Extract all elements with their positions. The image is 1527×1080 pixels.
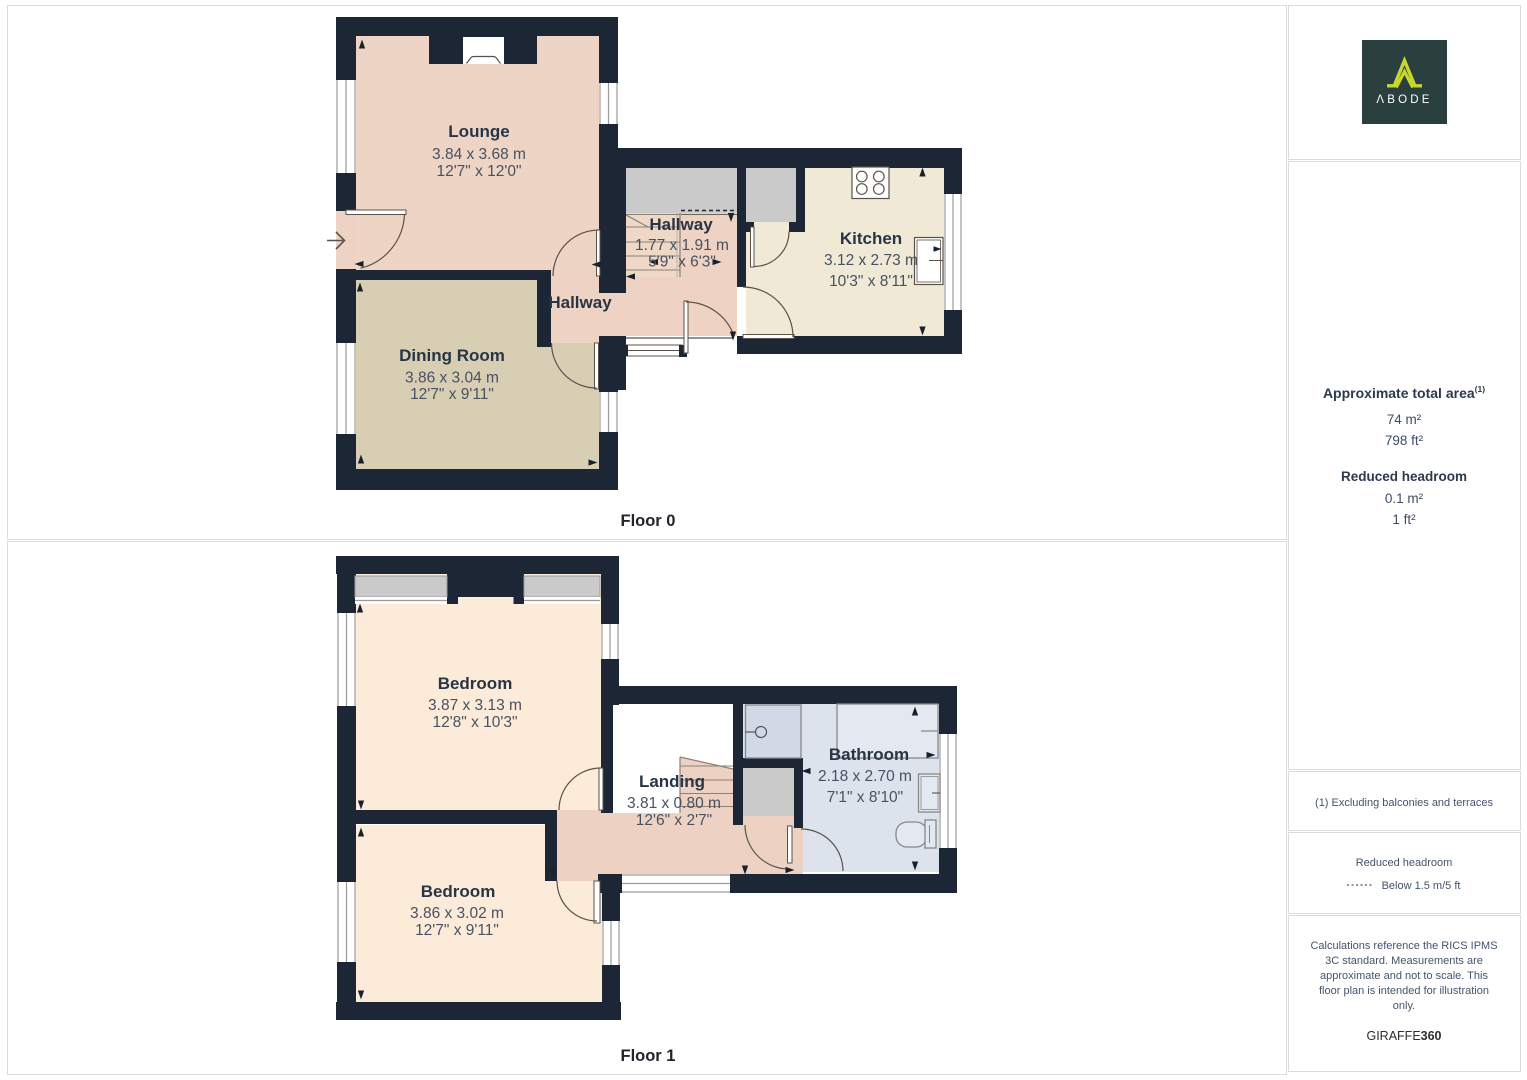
- svg-text:5'9" x 6'3": 5'9" x 6'3": [648, 254, 716, 271]
- svg-text:Dining Room: Dining Room: [399, 346, 505, 365]
- svg-text:Below 1.5 m/5 ft: Below 1.5 m/5 ft: [1382, 880, 1461, 892]
- svg-text:Landing: Landing: [639, 772, 705, 791]
- svg-text:Calculations reference the RIC: Calculations reference the RICS IPMS: [1310, 940, 1497, 952]
- svg-text:floor plan is intended for ill: floor plan is intended for illustration: [1319, 985, 1489, 997]
- svg-text:Floor 1: Floor 1: [620, 1047, 675, 1065]
- svg-text:Reduced headroom: Reduced headroom: [1356, 857, 1453, 869]
- svg-text:3.81 x 0.80 m: 3.81 x 0.80 m: [627, 795, 721, 812]
- svg-text:Hallway: Hallway: [649, 215, 713, 234]
- svg-text:only.: only.: [1393, 1000, 1415, 1012]
- svg-text:Floor 0: Floor 0: [620, 512, 675, 530]
- svg-text:12'7" x 12'0": 12'7" x 12'0": [436, 163, 521, 180]
- svg-text:10'3" x 8'11": 10'3" x 8'11": [829, 273, 913, 290]
- svg-text:Approximate total area(1): Approximate total area(1): [1323, 384, 1485, 401]
- svg-text:1 ft²: 1 ft²: [1392, 512, 1416, 527]
- svg-text:12'6" x 2'7": 12'6" x 2'7": [636, 812, 712, 829]
- svg-text:3.86 x 3.04 m: 3.86 x 3.04 m: [405, 370, 499, 387]
- svg-text:0.1 m²: 0.1 m²: [1385, 491, 1424, 506]
- svg-text:Reduced headroom: Reduced headroom: [1341, 469, 1467, 484]
- svg-text:ΛBODE: ΛBODE: [1376, 94, 1432, 106]
- svg-text:2.18 x 2.70 m: 2.18 x 2.70 m: [818, 768, 912, 785]
- svg-text:12'7" x 9'11": 12'7" x 9'11": [415, 922, 499, 939]
- svg-text:74 m²: 74 m²: [1387, 412, 1422, 427]
- svg-text:3C standard. Measurements are: 3C standard. Measurements are: [1325, 955, 1483, 967]
- svg-text:Lounge: Lounge: [448, 122, 509, 141]
- svg-text:Bathroom: Bathroom: [829, 745, 909, 764]
- svg-text:Kitchen: Kitchen: [840, 229, 902, 248]
- svg-text:GIRAFFE360: GIRAFFE360: [1366, 1029, 1441, 1043]
- svg-text:12'8" x 10'3": 12'8" x 10'3": [432, 714, 517, 731]
- svg-text:798 ft²: 798 ft²: [1385, 433, 1424, 448]
- svg-text:approximate and not to scale.: approximate and not to scale. This: [1320, 970, 1488, 982]
- svg-text:3.87 x 3.13 m: 3.87 x 3.13 m: [428, 697, 522, 714]
- svg-text:3.84 x 3.68 m: 3.84 x 3.68 m: [432, 146, 526, 163]
- svg-text:3.12 x 2.73 m: 3.12 x 2.73 m: [824, 252, 918, 269]
- svg-text:12'7" x 9'11": 12'7" x 9'11": [410, 386, 494, 403]
- svg-text:(1) Excluding balconies and te: (1) Excluding balconies and terraces: [1315, 797, 1493, 809]
- svg-text:1.77 x 1.91 m: 1.77 x 1.91 m: [635, 237, 729, 254]
- svg-text:7'1" x 8'10": 7'1" x 8'10": [827, 789, 903, 806]
- svg-text:Hallway: Hallway: [548, 293, 612, 312]
- svg-text:Bedroom: Bedroom: [438, 674, 513, 693]
- svg-text:3.86 x 3.02 m: 3.86 x 3.02 m: [410, 905, 504, 922]
- svg-text:Bedroom: Bedroom: [421, 882, 496, 901]
